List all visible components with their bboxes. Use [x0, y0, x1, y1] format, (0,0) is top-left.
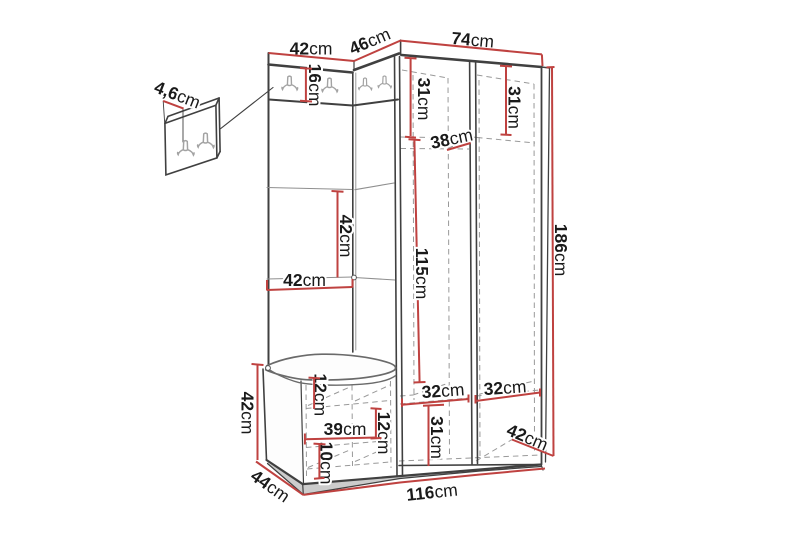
svg-text:42cm: 42cm: [283, 270, 326, 290]
svg-text:186cm: 186cm: [551, 224, 571, 277]
svg-text:32cm: 32cm: [421, 379, 465, 402]
svg-text:31cm: 31cm: [427, 416, 447, 459]
svg-text:31cm: 31cm: [414, 78, 434, 121]
svg-text:39cm: 39cm: [324, 419, 367, 439]
svg-text:31cm: 31cm: [504, 86, 524, 129]
svg-text:42cm: 42cm: [237, 392, 257, 435]
svg-text:16cm: 16cm: [305, 64, 325, 107]
svg-text:42cm: 42cm: [336, 215, 356, 258]
svg-text:115cm: 115cm: [412, 248, 432, 300]
